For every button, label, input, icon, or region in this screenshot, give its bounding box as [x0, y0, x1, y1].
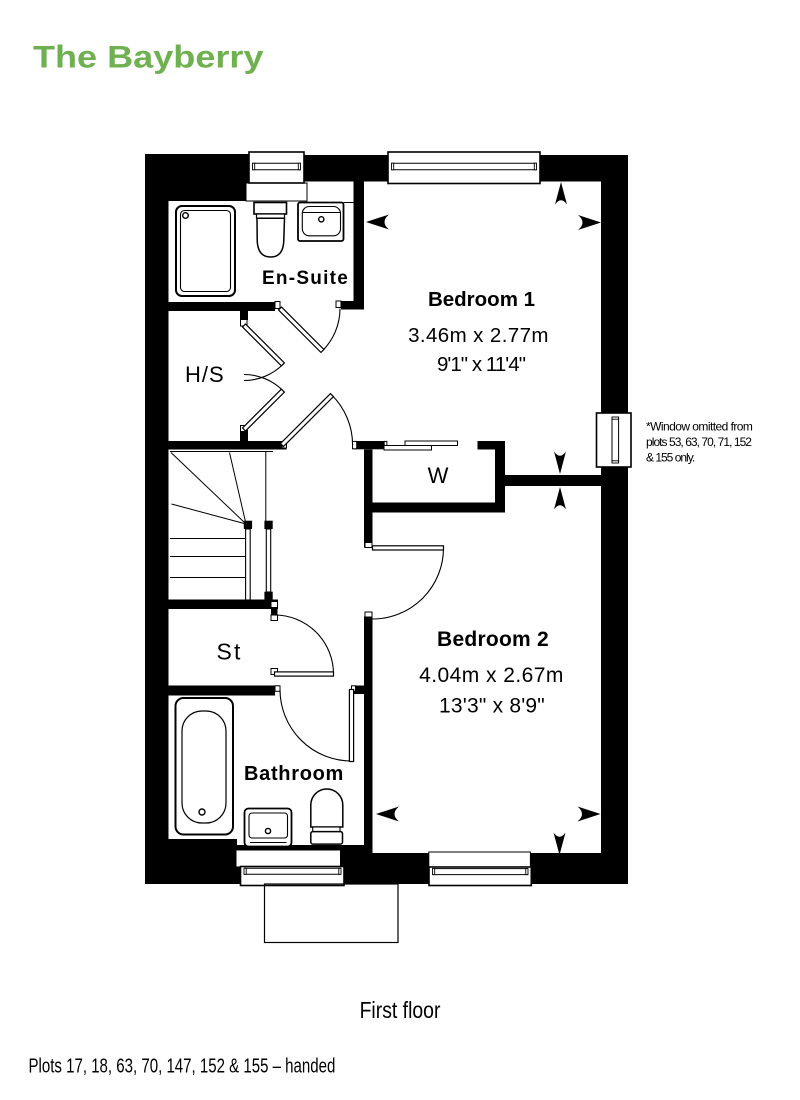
svg-text:13'3" x 8'9": 13'3" x 8'9" — [439, 695, 545, 718]
svg-text:Bathroom: Bathroom — [244, 763, 344, 785]
svg-text:The Bayberry: The Bayberry — [33, 40, 264, 75]
svg-text:Plots 17, 18, 63, 70, 147, 152: Plots 17, 18, 63, 70, 147, 152 & 155 – h… — [29, 1054, 336, 1077]
svg-text:*Window omitted from: *Window omitted from — [646, 420, 753, 434]
svg-text:Bedroom 1: Bedroom 1 — [428, 288, 535, 311]
svg-text:& 155 only.: & 155 only. — [646, 450, 695, 464]
svg-text:9'1" x 11'4": 9'1" x 11'4" — [437, 353, 526, 376]
svg-text:3.46m x 2.77m: 3.46m x 2.77m — [408, 324, 549, 347]
svg-text:St: St — [217, 639, 243, 665]
svg-text:4.04m x 2.67m: 4.04m x 2.67m — [419, 664, 564, 687]
svg-text:Bedroom 2: Bedroom 2 — [437, 628, 549, 651]
svg-text:plots 53, 63, 70, 71, 152: plots 53, 63, 70, 71, 152 — [646, 435, 752, 449]
svg-text:W: W — [428, 463, 449, 488]
svg-text:En-Suite: En-Suite — [262, 268, 349, 289]
svg-text:First floor: First floor — [360, 996, 441, 1023]
svg-text:H/S: H/S — [185, 362, 225, 387]
